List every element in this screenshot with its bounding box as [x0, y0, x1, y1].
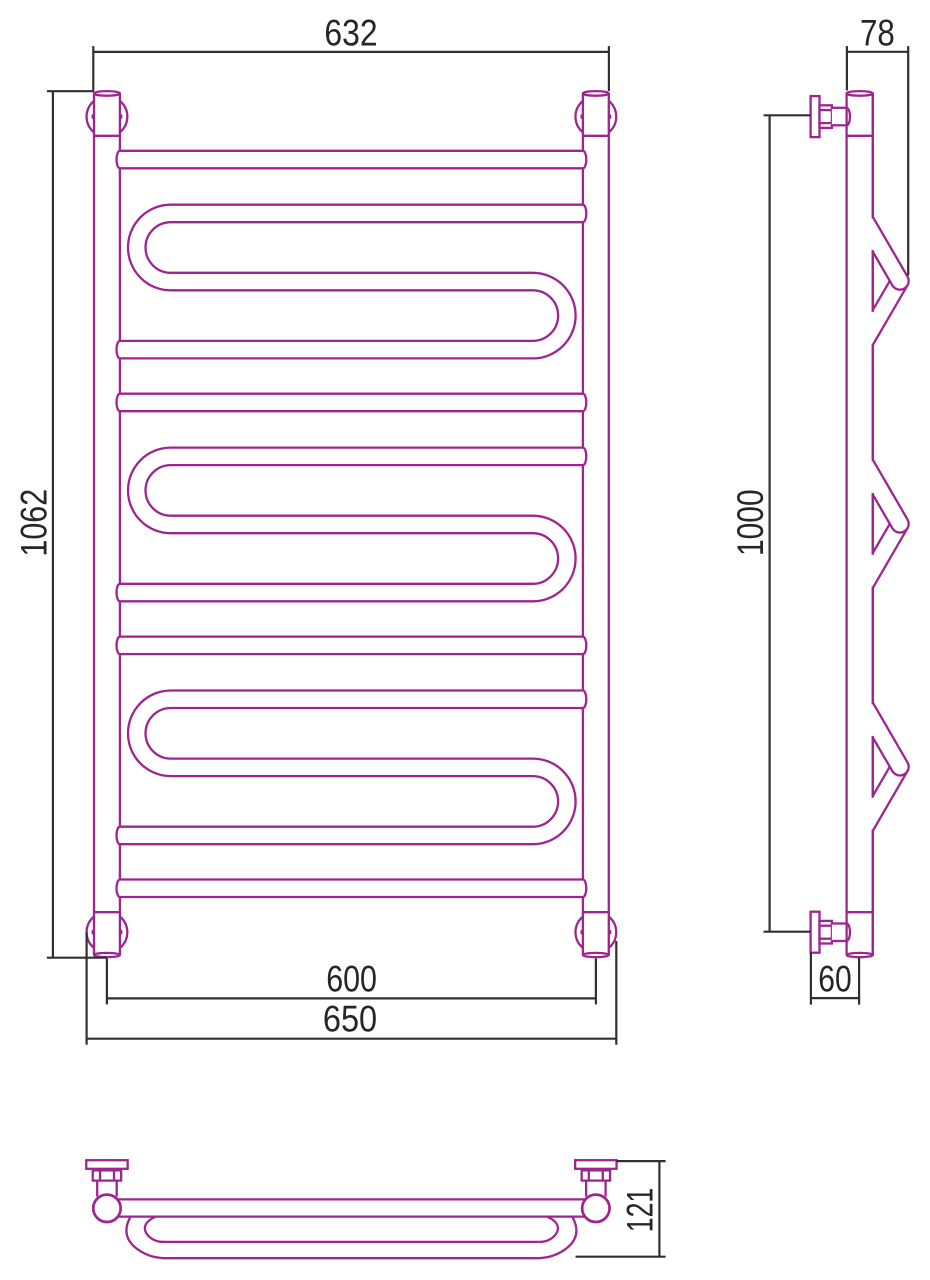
- svg-text:632: 632: [324, 12, 377, 53]
- svg-text:1062: 1062: [13, 489, 54, 557]
- svg-text:121: 121: [620, 1188, 661, 1233]
- svg-text:60: 60: [818, 958, 851, 999]
- svg-text:1000: 1000: [730, 489, 771, 556]
- svg-text:600: 600: [326, 958, 377, 999]
- svg-text:650: 650: [323, 998, 377, 1039]
- svg-text:78: 78: [860, 12, 895, 53]
